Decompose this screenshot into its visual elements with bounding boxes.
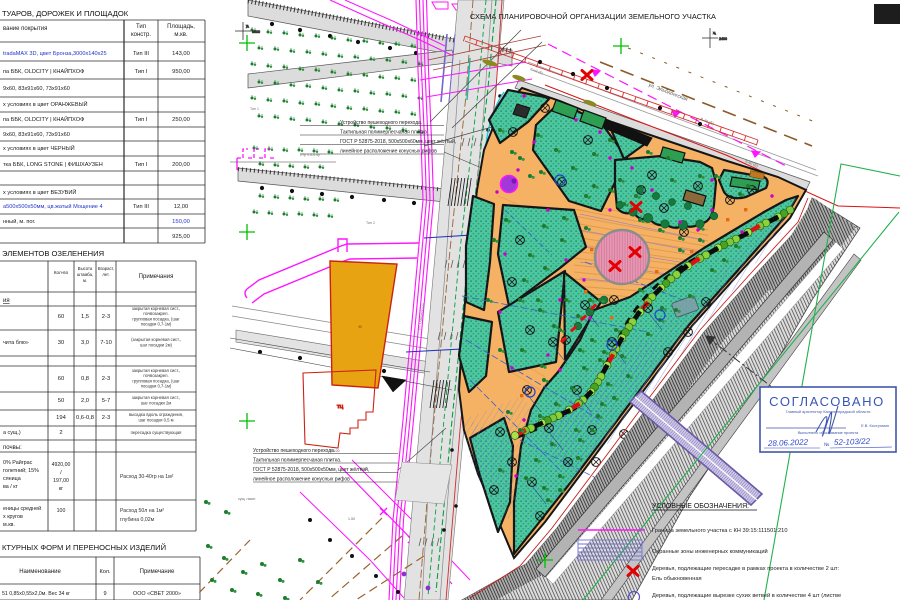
svg-text:х кругов: х кругов <box>3 514 23 520</box>
svg-text:200,00: 200,00 <box>172 162 190 168</box>
svg-text:R6.00: R6.00 <box>330 449 340 453</box>
svg-text:х условиях в цвет ВЕЗУВИЙ: х условиях в цвет ВЕЗУВИЙ <box>3 188 76 196</box>
svg-text:УСЛОВНЫЕ ОБОЗНАЧЕНИЯ:: УСЛОВНЫЕ ОБОЗНАЧЕНИЯ: <box>652 503 749 510</box>
svg-text:Тип I: Тип I <box>135 117 148 123</box>
svg-text:ГОСТ Р 52875-2018, 500х500х60м: ГОСТ Р 52875-2018, 500х500х60мм, цвет жё… <box>340 138 456 145</box>
svg-text:почвы:: почвы: <box>3 445 22 451</box>
svg-text:Тактильная полимерпесчаная пли: Тактильная полимерпесчаная плитка <box>340 130 427 136</box>
svg-text:925,00: 925,00 <box>172 234 190 240</box>
svg-text:2: 2 <box>59 430 62 436</box>
svg-text:7-10: 7-10 <box>100 340 112 346</box>
svg-text:Высота: Высота <box>78 266 93 271</box>
svg-text:констр.: констр. <box>131 32 151 38</box>
svg-text:сяница: сяница <box>3 476 21 482</box>
svg-text:1,5: 1,5 <box>81 314 89 320</box>
svg-text:ТЦ: ТЦ <box>337 404 344 409</box>
svg-text:лет.: лет. <box>102 272 109 277</box>
svg-text:а500х500х50мм, цв.жатый Мощени: а500х500х50мм, цв.жатый Мощение 4 <box>3 203 103 210</box>
svg-text:250,00: 250,00 <box>172 117 190 123</box>
svg-text:вание покрытия: вание покрытия <box>3 26 47 32</box>
svg-text:посадки 0,7-1м): посадки 0,7-1м) <box>141 322 172 327</box>
svg-text:посадки 0,7-1м): посадки 0,7-1м) <box>141 384 172 389</box>
svg-text:Граница земельного участка с К: Граница земельного участка с КН 39:15:11… <box>652 528 788 534</box>
svg-text:м.: м. <box>83 278 87 283</box>
svg-text:ЭЛЕМЕНТОВ ОЗЕЛЕНЕНИЯ: ЭЛЕМЕНТОВ ОЗЕЛЕНЕНИЯ <box>2 249 104 258</box>
svg-text:Выполнено обоснование проекта: Выполнено обоснование проекта <box>798 430 859 435</box>
svg-text:60: 60 <box>58 376 64 382</box>
svg-text:№: № <box>824 442 829 448</box>
svg-text:Главный архитектор Калининград: Главный архитектор Калининградской облас… <box>786 409 871 414</box>
svg-text:м: м <box>358 324 361 329</box>
svg-text:штамба,: штамба, <box>77 272 93 277</box>
svg-text:5-7: 5-7 <box>102 398 110 404</box>
svg-text:кг: кг <box>59 486 63 492</box>
svg-text:2-3: 2-3 <box>102 376 110 382</box>
svg-text:Кол-во: Кол-во <box>54 270 69 275</box>
svg-text:х условиях в цвет ЧЕРНЫЙ: х условиях в цвет ЧЕРНЫЙ <box>3 144 75 152</box>
svg-text:2Тр 1.4-0.4у: 2Тр 1.4-0.4у <box>300 153 320 157</box>
svg-text:Тип 1: Тип 1 <box>250 107 259 111</box>
svg-text:100: 100 <box>57 508 66 514</box>
svg-text:сущ. газон: сущ. газон <box>238 497 255 501</box>
svg-text:ия: ия <box>3 298 10 304</box>
svg-text:0% Райграс: 0% Райграс <box>3 459 33 466</box>
svg-text:линейное расположение конусных: линейное расположение конусных рифов <box>253 476 350 483</box>
svg-text:Тип I: Тип I <box>135 69 148 75</box>
svg-text:а сущ.): а сущ.) <box>3 430 21 436</box>
svg-text:Расход 50л на 1м²: Расход 50л на 1м² <box>120 508 164 514</box>
svg-text:Тип 2: Тип 2 <box>366 221 375 225</box>
svg-text:Примечание: Примечание <box>140 569 175 575</box>
svg-text:194: 194 <box>56 415 66 421</box>
svg-text:0,8: 0,8 <box>81 376 89 382</box>
svg-text:30: 30 <box>58 340 64 346</box>
svg-text:ООО «СВЕТ 2000»: ООО «СВЕТ 2000» <box>133 591 181 597</box>
svg-text:линейное расположение конусных: линейное расположение конусных рифов <box>340 148 437 155</box>
svg-text:х условиях в цвет ОРАНЖЕВЫЙ: х условиях в цвет ОРАНЖЕВЫЙ <box>3 100 88 108</box>
svg-text:м.кв.: м.кв. <box>174 32 188 38</box>
svg-text:ва / кг: ва / кг <box>3 484 18 490</box>
svg-text:шаг посадки 2м: шаг посадки 2м <box>141 400 172 405</box>
svg-text:60: 60 <box>58 314 64 320</box>
svg-text:тка ББК, LONG STONE | ФИШХАУЗЕ: тка ББК, LONG STONE | ФИШХАУЗЕН <box>3 162 103 168</box>
svg-text:tradaMAX 3D, цвет Бронза,3000х: tradaMAX 3D, цвет Бронза,3000х140х25 <box>3 51 107 57</box>
svg-text:150,00: 150,00 <box>172 219 190 225</box>
svg-text:Деревья, подлежащие пересадке: Деревья, подлежащие пересадке в рамках п… <box>652 566 839 572</box>
svg-text:Наименование: Наименование <box>19 569 61 575</box>
svg-text:па ББК, OLDCITY | КНАЙПХОФ: па ББК, OLDCITY | КНАЙПХОФ <box>3 67 84 75</box>
svg-text:1.50: 1.50 <box>348 517 355 521</box>
svg-text:2400: 2400 <box>719 37 727 41</box>
svg-text:шаг посадки 2м): шаг посадки 2м) <box>140 342 172 347</box>
svg-text:нный, м. пог.: нный, м. пог. <box>3 218 36 225</box>
svg-text:51 0,85х0,55х2,0м. Вес 34 кг: 51 0,85х0,55х2,0м. Вес 34 кг <box>2 591 70 597</box>
svg-text:6000: 6000 <box>252 30 260 34</box>
svg-text:Устройство пешеходного переход: Устройство пешеходного перехода. <box>340 119 422 126</box>
svg-text:50: 50 <box>58 398 64 404</box>
svg-text:Тип I: Тип I <box>135 162 148 168</box>
svg-text:Тип: Тип <box>136 24 146 30</box>
svg-text:чита блю»: чита блю» <box>3 340 29 346</box>
svg-text:СОГЛАСОВАНО: СОГЛАСОВАНО <box>769 394 885 409</box>
svg-text:Е.В. Костромин: Е.В. Костромин <box>861 423 889 428</box>
svg-text:глубина 0,02м: глубина 0,02м <box>120 517 155 523</box>
svg-text:197,00: 197,00 <box>53 478 69 484</box>
svg-text:Тактильная полимерпесчаная пли: Тактильная полимерпесчаная плитка. <box>253 458 341 464</box>
svg-text:2,0: 2,0 <box>81 398 89 404</box>
svg-text:КТУРНЫХ ФОРМ И ПЕРЕНОСНЫХ ИЗДЕ: КТУРНЫХ ФОРМ И ПЕРЕНОСНЫХ ИЗДЕЛИЙ <box>2 543 166 552</box>
svg-text:па ББК, OLDCITY | КНАЙПХОФ: па ББК, OLDCITY | КНАЙПХОФ <box>3 115 84 123</box>
svg-text:2-3: 2-3 <box>102 314 110 320</box>
svg-text:0,6-0,8: 0,6-0,8 <box>76 415 94 421</box>
svg-text:пересадка существующая: пересадка существующая <box>131 430 182 435</box>
svg-text:Возраст,: Возраст, <box>98 266 114 271</box>
svg-text:Ель обыкновенная: Ель обыкновенная <box>652 576 702 582</box>
svg-text:52-103/22: 52-103/22 <box>834 437 871 447</box>
svg-text:голетний; 15%: голетний; 15% <box>3 467 39 474</box>
svg-text:СХЕМА ПЛАНИРОВОЧНОЙ ОРГАНИЗАЦИ: СХЕМА ПЛАНИРОВОЧНОЙ ОРГАНИЗАЦИИ ЗЕМЕЛЬНО… <box>470 12 716 21</box>
svg-text:Площадь,: Площадь, <box>167 24 195 30</box>
svg-text:Деревья, подлежащие вырезке су: Деревья, подлежащие вырезке сухих ветвей… <box>652 592 841 599</box>
svg-text:3,0: 3,0 <box>81 340 89 346</box>
svg-text:12,00: 12,00 <box>174 204 189 210</box>
svg-text:Охранные зоны инженерных комму: Охранные зоны инженерных коммуникаций <box>652 548 768 555</box>
svg-text:28.06.2022: 28.06.2022 <box>767 438 809 448</box>
svg-text:Кол.: Кол. <box>99 569 111 575</box>
svg-text:9: 9 <box>103 591 106 597</box>
svg-text:шаг посадки 0,5 м: шаг посадки 0,5 м <box>138 417 173 422</box>
svg-text:9х60, 83х91х60, 73х91х60: 9х60, 83х91х60, 73х91х60 <box>3 132 70 138</box>
svg-text:м.кв.: м.кв. <box>3 522 15 528</box>
svg-text:ГОСТ Р 52875-2018, 500х500х50м: ГОСТ Р 52875-2018, 500х500х50мм, цвет жё… <box>253 466 369 473</box>
svg-text:Расход 30-40гр на 1м²: Расход 30-40гр на 1м² <box>120 474 174 480</box>
svg-text:950,00: 950,00 <box>172 69 190 75</box>
svg-text:ТУАРОВ, ДОРОЖЕК И ПЛОЩАДОК: ТУАРОВ, ДОРОЖЕК И ПЛОЩАДОК <box>2 9 129 18</box>
svg-text:Тип III: Тип III <box>133 204 149 210</box>
svg-text:9х60, 83х91х60, 73х91х60: 9х60, 83х91х60, 73х91х60 <box>3 86 70 92</box>
svg-text:4920,00: 4920,00 <box>52 462 71 468</box>
svg-text:Устройство пешеходного переход: Устройство пешеходного перехода. <box>253 447 335 454</box>
svg-text:Тип III: Тип III <box>133 51 149 57</box>
svg-text:2-3: 2-3 <box>102 415 110 421</box>
svg-text:еницы средней: еницы средней <box>3 505 41 512</box>
svg-text:Примечания: Примечания <box>139 274 174 280</box>
svg-text:143,00: 143,00 <box>172 51 190 57</box>
